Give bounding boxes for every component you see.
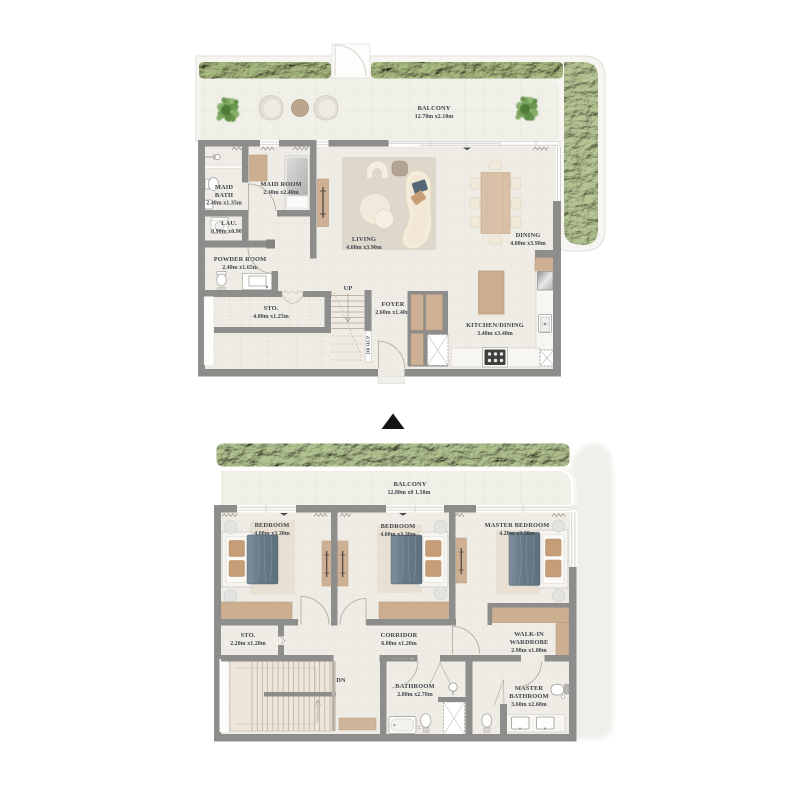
svg-text:MAID ROOM: MAID ROOM xyxy=(260,181,301,188)
svg-text:4.60m x3.90m: 4.60m x3.90m xyxy=(346,245,382,251)
svg-text:12.80m x0 1.50m: 12.80m x0 1.50m xyxy=(387,490,430,496)
svg-text:LIVING: LIVING xyxy=(352,236,376,243)
svg-text:DN: DN xyxy=(336,677,346,684)
svg-text:4.00m x3.30m: 4.00m x3.30m xyxy=(380,532,416,538)
svg-text:2.60m x1.40m: 2.60m x1.40m xyxy=(375,310,411,316)
svg-text:BALCONY: BALCONY xyxy=(417,105,450,112)
svg-text:2.80m x2.70m: 2.80m x2.70m xyxy=(397,692,433,698)
svg-text:2.40m x1.35m: 2.40m x1.35m xyxy=(206,201,242,207)
svg-text:12.70m x2.10m: 12.70m x2.10m xyxy=(415,114,454,120)
svg-text:2.90m x1.80m: 2.90m x1.80m xyxy=(511,648,547,654)
svg-text:3.60m x2.60m: 3.60m x2.60m xyxy=(511,702,547,708)
svg-text:3.40m x3.40m: 3.40m x3.40m xyxy=(477,331,513,337)
svg-text:CORRIDOR: CORRIDOR xyxy=(381,632,418,639)
svg-text:4.20m x3.30m: 4.20m x3.30m xyxy=(499,531,535,537)
svg-text:KITCHEN/DINING: KITCHEN/DINING xyxy=(466,322,524,329)
svg-text:MASTER BEDROOM: MASTER BEDROOM xyxy=(485,522,550,529)
svg-text:UP: UP xyxy=(344,285,353,292)
svg-text:POWDER ROOM: POWDER ROOM xyxy=(214,256,267,263)
svg-text:BATH: BATH xyxy=(215,192,233,199)
svg-text:STO.: STO. xyxy=(264,305,279,312)
svg-text:BALCONY: BALCONY xyxy=(393,481,426,488)
svg-text:4.00m x1.25m: 4.00m x1.25m xyxy=(253,314,289,320)
svg-text:DB HCP: DB HCP xyxy=(366,336,371,354)
svg-text:DINING: DINING xyxy=(516,232,541,239)
svg-text:FOYER: FOYER xyxy=(381,301,404,308)
svg-text:MAID: MAID xyxy=(215,184,234,191)
svg-text:WARDROBE: WARDROBE xyxy=(510,639,549,646)
svg-text:2.20m x1.20m: 2.20m x1.20m xyxy=(230,641,266,647)
svg-text:BATHROOM: BATHROOM xyxy=(509,693,548,700)
svg-text:4.00m x3.90m: 4.00m x3.90m xyxy=(510,241,546,247)
svg-text:0.90m x0.90m: 0.90m x0.90m xyxy=(211,229,247,235)
svg-text:6.00m x1.20m: 6.00m x1.20m xyxy=(381,641,417,647)
svg-text:STO.: STO. xyxy=(241,632,256,639)
svg-text:LAU.: LAU. xyxy=(221,220,237,227)
svg-text:WALK-IN: WALK-IN xyxy=(514,631,544,638)
svg-text:2.40m x1.65m: 2.40m x1.65m xyxy=(222,265,258,271)
svg-text:BEDROOM: BEDROOM xyxy=(255,522,290,529)
svg-text:4.00m x3.30m: 4.00m x3.30m xyxy=(254,531,290,537)
svg-text:MASTER: MASTER xyxy=(515,685,543,692)
svg-text:BEDROOM: BEDROOM xyxy=(381,523,416,530)
svg-text:BATHROOM: BATHROOM xyxy=(395,683,434,690)
